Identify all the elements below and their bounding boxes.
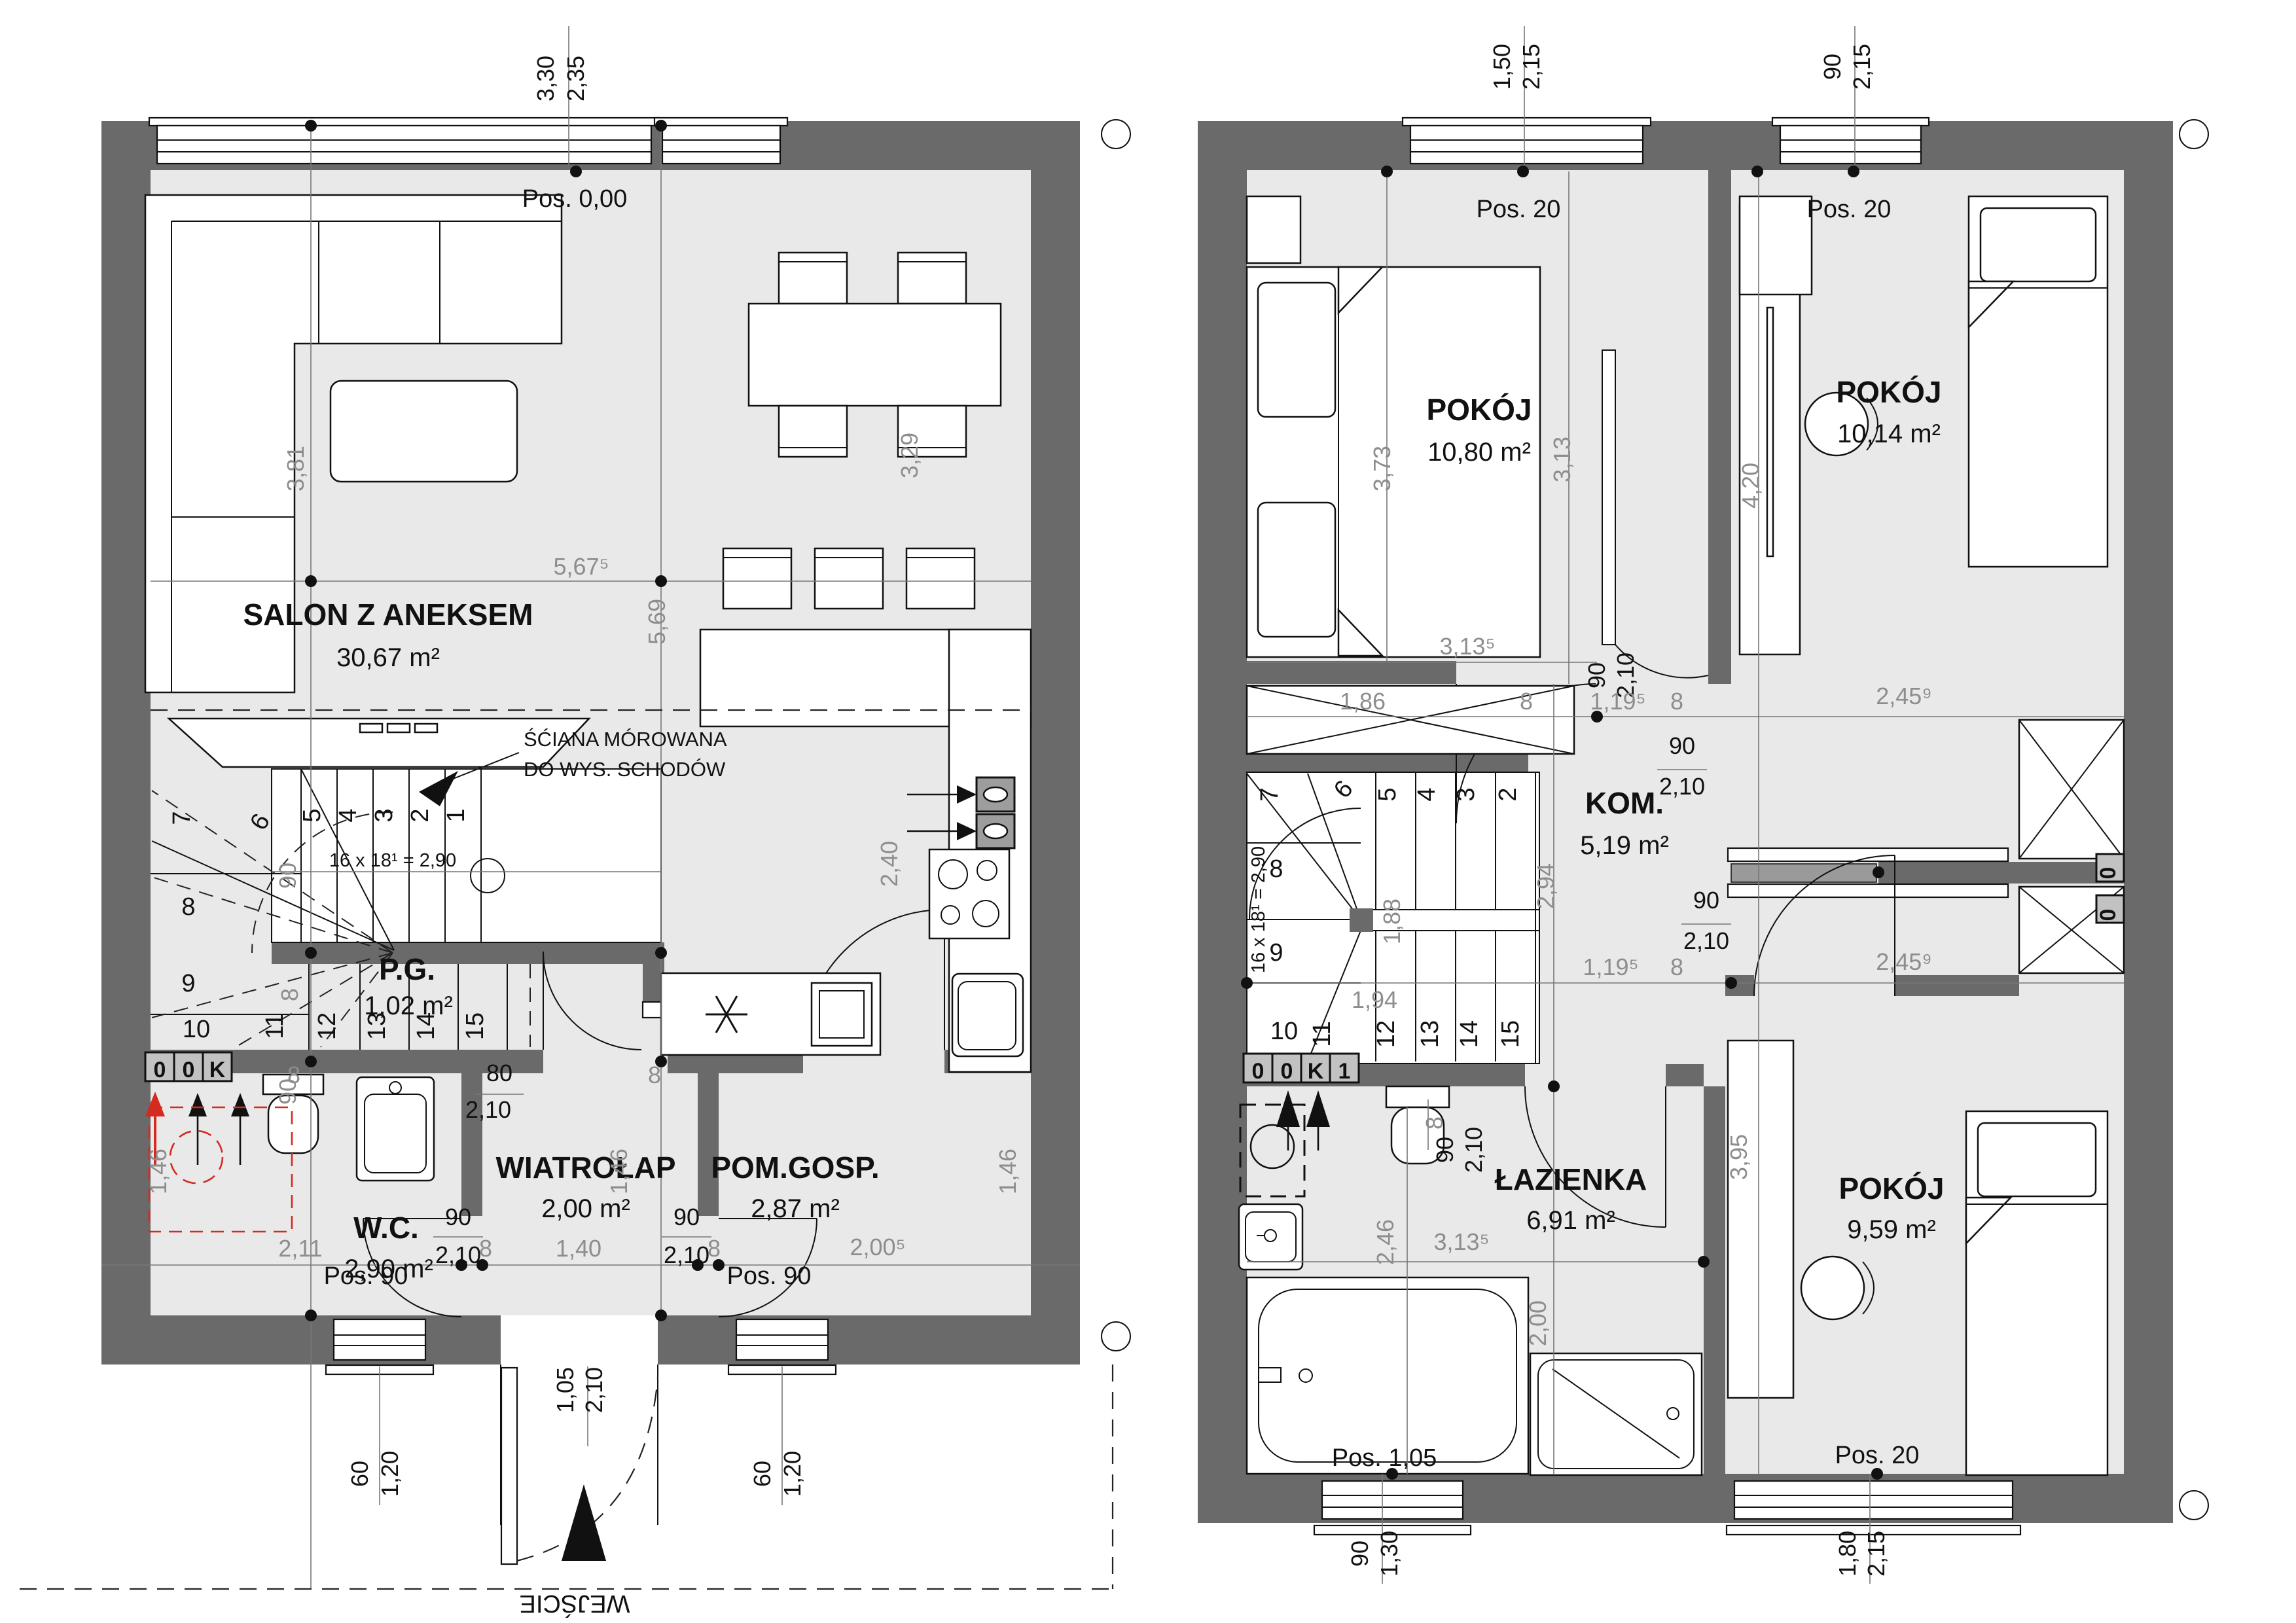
nightstand: [1247, 196, 1300, 263]
opening-size-label: 90: [1693, 887, 1719, 914]
stair-number: 7: [168, 811, 196, 825]
entrance-door: [501, 1315, 658, 1564]
pos-label: Pos. 90: [727, 1262, 812, 1290]
opening-size-label: 90: [1583, 662, 1610, 688]
pos-label: Pos. 20: [1807, 196, 1892, 223]
ground-floor-plan: [20, 26, 1113, 1589]
dimension-label: 3,13⁵: [1434, 1228, 1490, 1255]
opening-size-label: 90: [673, 1204, 700, 1230]
stair-number: 14: [412, 1012, 440, 1040]
opening-size-label: 2,10: [465, 1096, 511, 1123]
washbasin-icon: [1239, 1204, 1302, 1270]
opening-size-label: 1,20: [376, 1451, 403, 1497]
dimension-label: 1,46: [994, 1149, 1021, 1194]
dimension-label: 3,95: [1725, 1134, 1752, 1180]
dimension-label: 4,20: [1737, 463, 1764, 508]
stove-icon: [929, 849, 1009, 938]
opening-size-label: 2,10: [435, 1241, 481, 1268]
room-area-label: 2,87 m²: [751, 1194, 840, 1223]
window: [1727, 1481, 2020, 1535]
opening-size-label: 60: [346, 1461, 373, 1487]
window: [149, 118, 659, 164]
opening-size-label: 1,20: [779, 1451, 806, 1497]
dimension-label: 2,40: [876, 841, 903, 887]
opening-size-label: 90: [1669, 732, 1695, 759]
dimension-label: 90: [274, 863, 301, 889]
annotation-label: DO WYS. SCHODÓW: [524, 758, 726, 781]
pos-label: Pos. 20: [1477, 196, 1561, 223]
opening-size-label: 90: [1346, 1541, 1373, 1567]
dimension-label: 8: [1670, 688, 1683, 715]
opening-size-label: 1,50: [1488, 44, 1515, 90]
legend-letter: 1: [1338, 1059, 1351, 1084]
room-label: POKÓJ: [1839, 1171, 1944, 1205]
bar-stools: [723, 548, 975, 609]
pos-label: Pos. 20: [1835, 1442, 1920, 1469]
stair-number: 2: [406, 808, 434, 822]
dimension-label: 2,46: [1372, 1219, 1399, 1265]
legend-letter: 0: [183, 1058, 195, 1082]
dimension-label: 1,19⁵: [1590, 688, 1646, 715]
stair-number: 11: [1308, 1021, 1336, 1046]
room-label: W.C.: [353, 1211, 419, 1245]
dimension-label: 2,11: [278, 1235, 322, 1262]
legend-letter: 0: [2096, 909, 2121, 921]
dimension-label: 8: [1520, 688, 1533, 715]
room-label: POKÓJ: [1426, 393, 1532, 427]
stair-number: 14: [1456, 1020, 1483, 1048]
legend-letter: 0: [1252, 1059, 1265, 1084]
dimension-label: 2,45⁹: [1876, 683, 1931, 709]
dimension-label: 8: [479, 1235, 492, 1262]
stair-number: 4: [334, 808, 362, 822]
stair-number: 10: [183, 1016, 210, 1043]
legend-letter: K: [209, 1058, 226, 1082]
legend-letter: 0: [1281, 1059, 1293, 1084]
room-area-label: 10,14 m²: [1837, 419, 1941, 448]
dimension-label: 3,81: [282, 446, 309, 491]
opening-size-label: 2,15: [1848, 44, 1875, 90]
opening-size-label: 2,10: [581, 1367, 607, 1413]
stair-formula-label: 16 x 18¹ = 2,90: [329, 850, 456, 871]
washbasin-icon: [357, 1077, 434, 1181]
window: [728, 1319, 836, 1374]
opening-size-label: 2,10: [1460, 1127, 1487, 1173]
stair-number: 13: [363, 1012, 391, 1040]
dimension-label: 3,13: [1549, 437, 1575, 482]
dimension-label: 8: [648, 1061, 661, 1088]
opening-size-label: 90: [445, 1204, 471, 1230]
opening-size-label: 90: [1819, 54, 1846, 80]
sink-icon: [952, 974, 1023, 1056]
legend-letter: 0: [2096, 867, 2121, 880]
stair-number: 5: [1374, 787, 1401, 801]
dimension-label: 3,13⁵: [1440, 633, 1496, 660]
dimension-label: 3,29: [896, 433, 923, 478]
legend-letter: K: [1308, 1059, 1324, 1084]
dimension-label: 2,00: [1524, 1300, 1551, 1346]
oven-icon: [812, 983, 872, 1046]
opening-size-label: 1,30: [1376, 1531, 1403, 1577]
floor-plan-drawing: SALON Z ANEKSEM30,67 m²P.G.1,02 m²W.C.2,…: [0, 0, 2296, 1623]
opening-size-label: 2,10: [1683, 927, 1729, 954]
dimension-label: 2,45⁹: [1876, 948, 1931, 975]
stair-formula-label: 16 x 18¹ = 2,90: [1248, 846, 1269, 973]
dimension-label: 1,94: [1352, 986, 1397, 1013]
room-area-label: 30,67 m²: [336, 643, 440, 672]
dimension-label: 2,94: [1532, 863, 1559, 909]
room-area-label: 10,80 m²: [1427, 438, 1531, 467]
stair-number: 12: [1372, 1020, 1400, 1048]
opening-size-label: 2,15: [1518, 44, 1545, 90]
dimension-label: 5,67⁵: [554, 553, 609, 580]
window: [1772, 118, 1929, 164]
window: [1314, 1481, 1471, 1535]
room-label: P.G.: [379, 952, 435, 986]
desk: [1728, 1041, 1793, 1398]
room-label: WIATROŁAP: [495, 1150, 675, 1185]
annotation-label: ŚĆIANA MÓROWANA: [524, 727, 727, 751]
room-label: ŁAZIENKA: [1495, 1162, 1647, 1196]
window: [1403, 118, 1651, 164]
room-label: POM.GOSP.: [711, 1150, 879, 1185]
opening-size-label: 80: [486, 1060, 512, 1086]
window: [326, 1319, 433, 1374]
opening-size-label: 90: [1431, 1137, 1458, 1163]
dimension-label: 1,19⁵: [1583, 954, 1639, 980]
stair-number: 5: [298, 808, 326, 822]
stair-number: 15: [461, 1012, 489, 1040]
dimension-label: 2,00⁵: [850, 1234, 906, 1260]
stair-number: 8: [181, 893, 195, 921]
stair-number: 2: [1494, 787, 1522, 801]
opening-size-label: 1,80: [1834, 1531, 1861, 1577]
coffee-table: [331, 381, 517, 482]
opening-size-label: 60: [749, 1461, 776, 1487]
dimension-label: 1,88: [1378, 899, 1405, 944]
stair-number: 9: [1269, 939, 1283, 967]
stair-number: 7: [1256, 787, 1283, 801]
dimension-label: 8: [1670, 954, 1683, 980]
pos-label: Pos. 0,00: [522, 185, 628, 213]
opening-size-label: 2,10: [664, 1241, 709, 1268]
entrance-arrow-icon: [562, 1484, 606, 1561]
dimension-label: 1,46: [605, 1149, 632, 1194]
stair-number: 15: [1497, 1020, 1524, 1048]
opening-size-label: 2,10: [1659, 773, 1705, 800]
stair-number: 12: [314, 1012, 341, 1040]
room-label: POKÓJ: [1836, 375, 1941, 409]
dimension-label: 3,73: [1369, 446, 1395, 491]
opening-size-label: 2,15: [1863, 1531, 1890, 1577]
stair-number: 13: [1416, 1020, 1444, 1048]
stair-number: 1: [442, 808, 470, 822]
pos-label: Pos. 1,05: [1332, 1444, 1437, 1472]
stair-number: 8: [1269, 855, 1283, 883]
pos-label: WEJŚCIE: [520, 1590, 630, 1619]
upper-floor-plan: [1198, 26, 2173, 1584]
room-area-label: 6,91 m²: [1526, 1206, 1615, 1235]
stair-number: 3: [370, 808, 398, 822]
dimension-label: 5,69: [643, 599, 670, 645]
dimension-label: 1,40: [556, 1235, 601, 1262]
legend-letter: 0: [154, 1058, 166, 1082]
bed: [1966, 1111, 2108, 1475]
room-area-label: 2,00 m²: [541, 1194, 630, 1223]
dimension-label: 1,46: [145, 1149, 171, 1194]
room-label: KOM.: [1585, 786, 1664, 820]
pos-label: Pos. 90: [324, 1262, 408, 1290]
shower-icon: [1530, 1353, 1702, 1475]
floor-plan-sheet: SALON Z ANEKSEM30,67 m²P.G.1,02 m²W.C.2,…: [0, 0, 2296, 1623]
stair-number: 11: [261, 1013, 289, 1039]
stair-number: 4: [1413, 787, 1441, 801]
dimension-label: 1,86: [1340, 688, 1386, 715]
bed: [1969, 196, 2108, 567]
stair-number: 3: [1452, 787, 1480, 801]
opening-size-label: 3,30: [532, 56, 559, 101]
dimension-label: 8: [708, 1235, 721, 1262]
opening-size-label: 1,05: [552, 1367, 579, 1413]
dimension-label: 8: [1421, 1116, 1448, 1130]
window: [655, 118, 787, 164]
dimension-label: 8: [276, 988, 303, 1001]
stair-number: 10: [1270, 1018, 1298, 1045]
room-area-label: 5,19 m²: [1580, 831, 1669, 860]
room-label: SALON Z ANEKSEM: [243, 597, 533, 632]
room-area-label: 9,59 m²: [1847, 1215, 1936, 1244]
opening-size-label: 2,35: [562, 56, 589, 101]
dimension-label: 8: [287, 1061, 300, 1088]
stair-number: 9: [181, 970, 195, 997]
kitchen-island: [661, 973, 880, 1055]
